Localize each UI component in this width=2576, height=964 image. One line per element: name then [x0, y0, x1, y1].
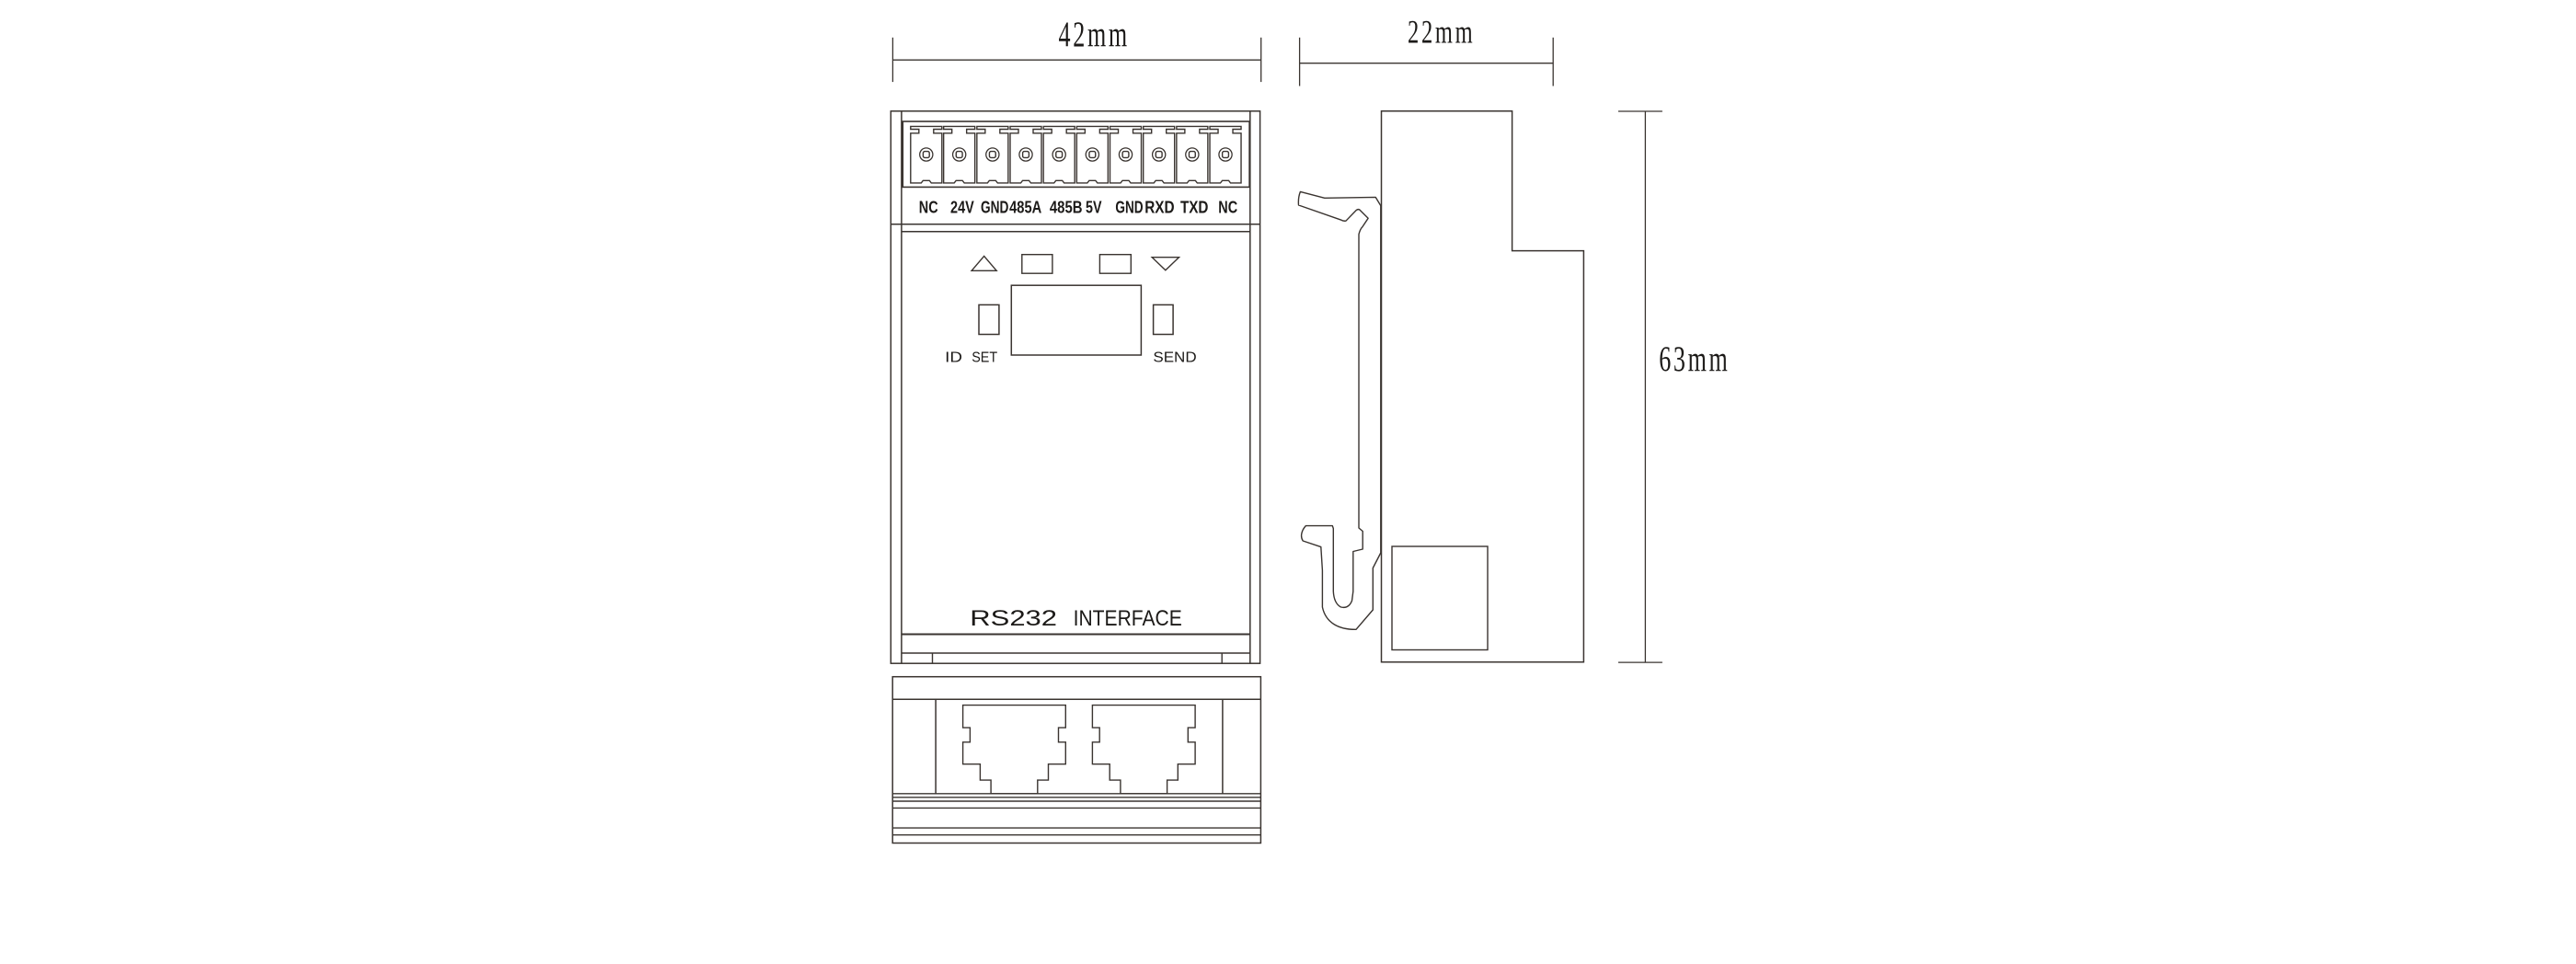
svg-text:22mm: 22mm — [1408, 14, 1475, 51]
svg-text:SEND: SEND — [1153, 350, 1196, 366]
svg-text:NC: NC — [919, 198, 938, 216]
svg-text:TXD: TXD — [1180, 198, 1209, 216]
svg-text:NC: NC — [1218, 198, 1237, 216]
svg-text:RS232: RS232 — [970, 606, 1057, 631]
svg-text:485B: 485B — [1050, 198, 1083, 216]
svg-text:SET: SET — [972, 350, 997, 366]
svg-text:RXD: RXD — [1144, 198, 1174, 216]
svg-text:INTERFACE: INTERFACE — [1074, 606, 1182, 631]
svg-text:ID: ID — [945, 350, 962, 366]
svg-text:24V: 24V — [950, 198, 974, 216]
svg-text:GND: GND — [981, 198, 1008, 216]
svg-text:GND: GND — [1115, 198, 1143, 216]
svg-text:63mm: 63mm — [1659, 339, 1730, 379]
svg-text:42mm: 42mm — [1059, 15, 1130, 54]
svg-text:5V: 5V — [1086, 198, 1102, 216]
svg-text:485A: 485A — [1009, 198, 1041, 216]
